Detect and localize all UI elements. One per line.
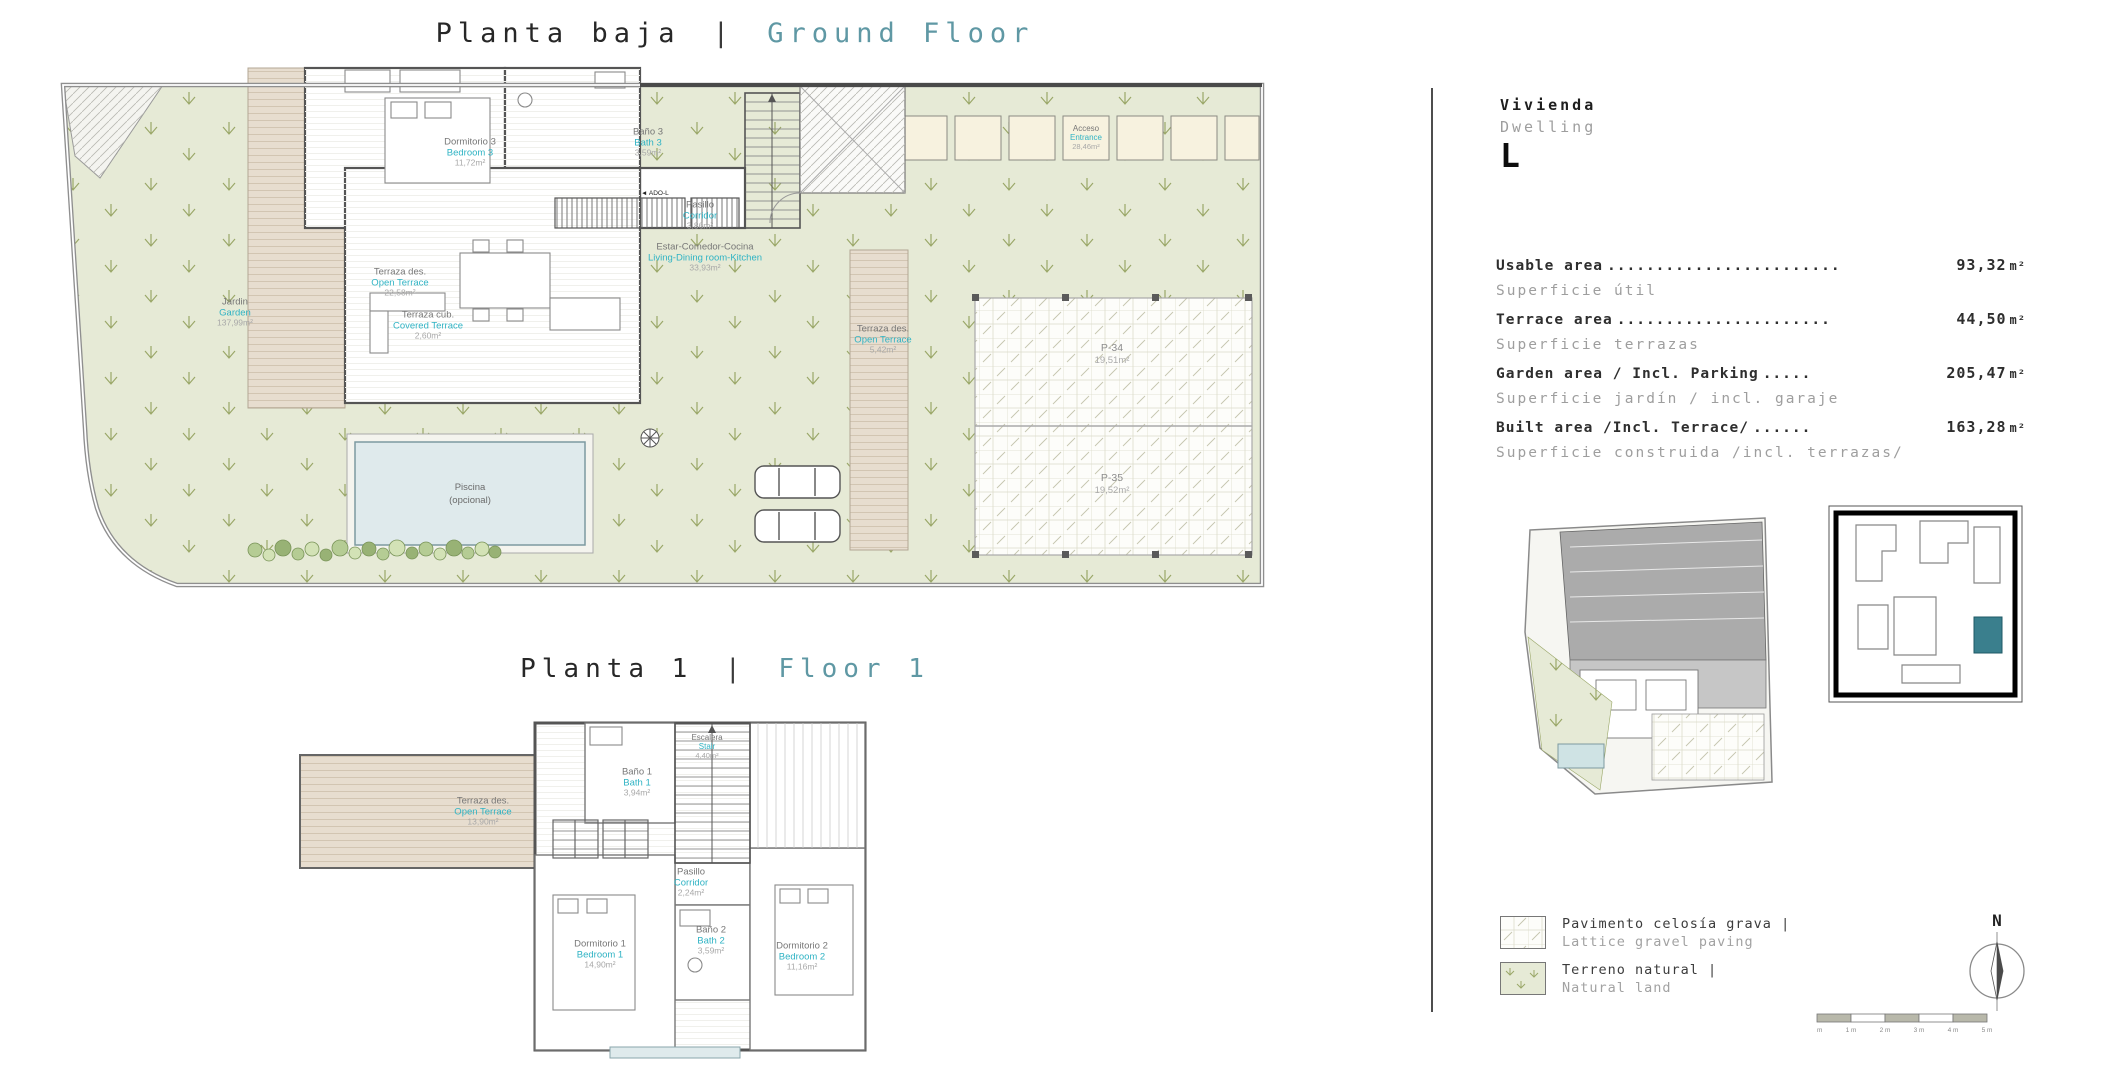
- legend-swatch-natural: [1500, 962, 1546, 995]
- room-label-bedroom2: Dormitorio 2 Bedroom 2 11,16m²: [776, 942, 828, 973]
- svg-text:5 m: 5 m: [1982, 1027, 1993, 1034]
- area-unit: m²: [2010, 367, 2026, 381]
- floor1-title: Planta 1 | Floor 1: [520, 654, 930, 684]
- room-label-living: Estar-Comedor-Cocina Living-Dining room-…: [648, 243, 762, 274]
- parking-area: [972, 294, 1252, 558]
- legend-swatch-lattice: [1500, 916, 1546, 949]
- area-label: Garden area / Incl. Parking: [1496, 366, 1759, 382]
- area-value: 163,28: [1938, 418, 2006, 436]
- area-value: 93,32: [1948, 256, 2006, 274]
- room-label-f1-open-terrace: Terraza des. Open Terrace 13,90m²: [454, 797, 511, 828]
- area-row: Built area /Incl. Terrace/ ......163,28m…: [1496, 418, 2026, 472]
- svg-text:4 m: 4 m: [1948, 1027, 1959, 1034]
- legend-label-es: Pavimento celosía grava |: [1562, 916, 1790, 932]
- entry-canopy: [800, 86, 905, 193]
- open-terrace-right-deck: [850, 250, 908, 550]
- entrance-paving: [847, 116, 1259, 160]
- room-label-bath3: Baño 3 Bath 3 3,59m²: [633, 128, 663, 159]
- room-label-covered-terrace: Terraza cub. Covered Terrace 2,60m²: [393, 311, 463, 342]
- mini-location-plan: [1828, 505, 2023, 703]
- parasol-icon: [641, 429, 659, 447]
- area-unit: m²: [2010, 421, 2026, 435]
- room-label-garden: Jardin Garden 137,99m²: [217, 298, 253, 329]
- room-label-entrance: Acceso Entrance 28,46m²: [1070, 125, 1102, 151]
- room-label-bedroom1: Dormitorio 1 Bedroom 1 14,90m²: [574, 940, 626, 971]
- pool-label: Piscina (opcional): [449, 482, 491, 508]
- area-table: Usable area........................93,32…: [1496, 256, 2026, 472]
- legend-natural: Terreno natural | Natural land: [1500, 962, 1717, 996]
- floor1-solarium: [750, 723, 865, 848]
- legend-lattice: Pavimento celosía grava | Lattice gravel…: [1500, 916, 1790, 950]
- area-label: Built area /Incl. Terrace/: [1496, 420, 1749, 436]
- room-label-bath2: Baño 2 Bath 2 3,59m²: [696, 926, 726, 957]
- panel-divider: [1431, 88, 1433, 1012]
- title-en: Floor 1: [778, 654, 930, 684]
- area-value: 205,47: [1938, 364, 2006, 382]
- dwelling-label: Dwelling: [1500, 118, 1596, 136]
- parking-label-p34: P-34 19,51m²: [1095, 342, 1130, 366]
- area-sublabel: Superficie útil: [1496, 283, 2026, 310]
- area-row: Terrace area......................44,50m…: [1496, 310, 2026, 364]
- svg-text:1 m: 1 m: [1846, 1027, 1857, 1034]
- north-compass: N: [1952, 908, 2042, 1016]
- room-label-open-terrace-right: Terraza des. Open Terrace 5,42m²: [854, 325, 911, 356]
- area-label: Terrace area: [1496, 312, 1613, 328]
- mini-site-plan: [1500, 512, 1785, 800]
- floor1-drawing: [295, 715, 875, 1060]
- room-label-bath1: Baño 1 Bath 1 3,94m²: [622, 768, 652, 799]
- svg-text:2 m: 2 m: [1880, 1027, 1891, 1034]
- highlighted-dwelling: [1974, 617, 2002, 653]
- compass-n-label: N: [1992, 911, 2002, 930]
- room-label-bedroom3: Dormitorio 3 Bedroom 3 11,72m²: [444, 138, 496, 169]
- ground-floor-plan: Dormitorio 3 Bedroom 3 11,72m² Baño 3 Ba…: [55, 58, 1270, 593]
- area-sublabel: Superficie terrazas: [1496, 337, 2026, 364]
- legend-label-en: Natural land: [1562, 980, 1717, 996]
- unit-letter: L: [1500, 136, 1520, 175]
- legend-label-es: Terreno natural |: [1562, 962, 1717, 978]
- title-en: Ground Floor: [767, 18, 1034, 49]
- svg-text:3 m: 3 m: [1914, 1027, 1925, 1034]
- floor1-plan: Terraza des. Open Terrace 13,90m² Baño 1…: [295, 715, 875, 1060]
- area-unit: m²: [2010, 259, 2026, 273]
- svg-text:0 m: 0 m: [1815, 1027, 1822, 1034]
- balcony: [610, 1047, 740, 1058]
- room-label-corridor: Pasillo Corridor 3,86m²: [683, 201, 717, 232]
- title-separator: |: [715, 654, 757, 684]
- parking-label-p35: P-35 19,52m²: [1095, 472, 1130, 496]
- vivienda-label: Vivienda: [1500, 96, 1596, 114]
- stair-ground: [745, 93, 800, 228]
- ground-floor-title: Planta baja | Ground Floor: [436, 18, 1035, 49]
- scale-bar: 0 m 1 m 2 m 3 m 4 m 5 m: [1815, 1012, 2005, 1038]
- legend-label-en: Lattice gravel paving: [1562, 934, 1790, 950]
- area-unit: m²: [2010, 313, 2026, 327]
- room-label-f1-corridor: Pasillo Corridor 2,24m²: [674, 868, 708, 899]
- title-es: Planta baja: [436, 18, 681, 49]
- title-es: Planta 1: [520, 654, 693, 684]
- area-sublabel: Superficie jardín / incl. garaje: [1496, 391, 2026, 418]
- room-label-open-terrace-left: Terraza des. Open Terrace 22,58m²: [371, 268, 428, 299]
- area-label: Usable area: [1496, 258, 1603, 274]
- area-sublabel: Superficie construida /incl. terrazas/: [1496, 445, 2026, 472]
- area-value: 44,50: [1948, 310, 2006, 328]
- title-separator: |: [703, 18, 745, 49]
- area-row: Garden area / Incl. Parking .....205,47m…: [1496, 364, 2026, 418]
- ado-label: ◄ ADO-L: [641, 190, 669, 197]
- floorplan-sheet: Planta baja | Ground Floor: [0, 0, 2105, 1080]
- room-label-stair: Escalera Stair 4,40m²: [691, 734, 722, 760]
- area-row: Usable area........................93,32…: [1496, 256, 2026, 310]
